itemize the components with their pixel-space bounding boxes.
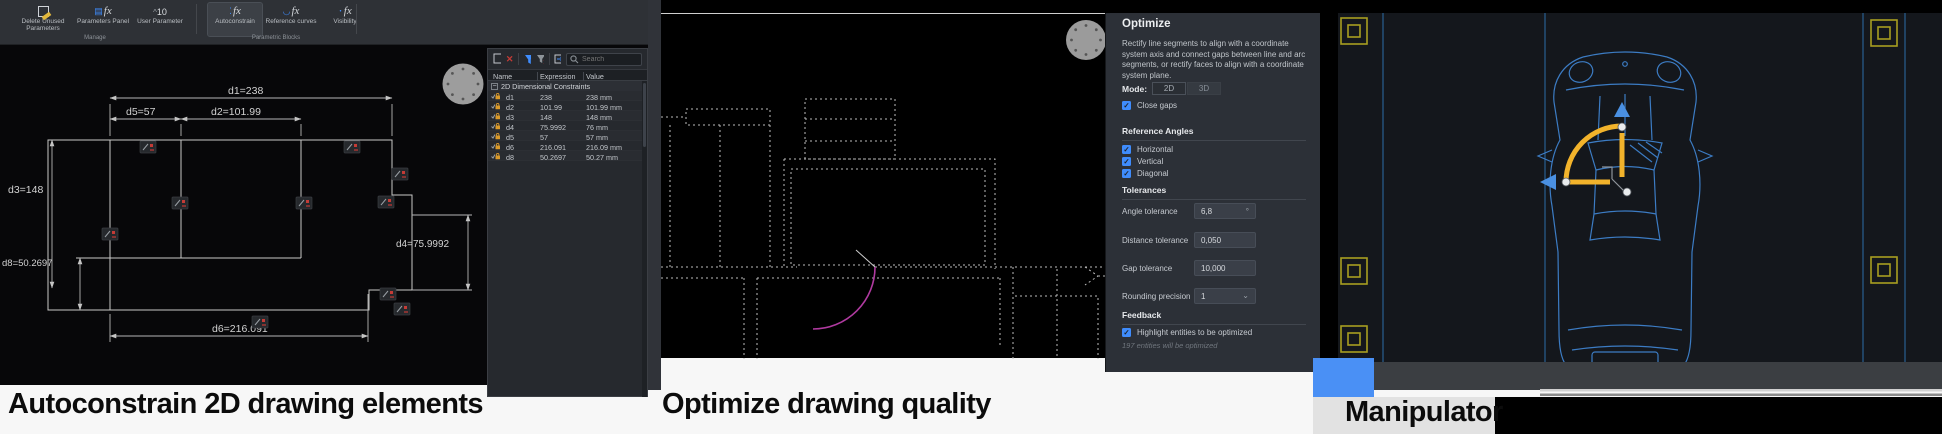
window-bottom-band — [1338, 362, 1942, 390]
distance-tolerance-input[interactable]: 0,050 — [1194, 232, 1256, 248]
table-row[interactable]: d55757 mm — [488, 131, 647, 141]
section-feedback: Feedback — [1122, 310, 1161, 320]
clear-filter-icon[interactable] — [536, 54, 544, 65]
angle-tolerance-label: Angle tolerance — [1122, 207, 1178, 216]
angle-tolerance-input[interactable]: 6,8° — [1194, 203, 1256, 219]
constraint-badges[interactable] — [102, 141, 410, 328]
section-reference-angles: Reference Angles — [1122, 126, 1194, 136]
blue-accent-square — [1313, 358, 1374, 397]
dim-d2: d2=101.99 — [211, 106, 261, 118]
ribbon-group-parametric-blocks: Parametric Blocks — [196, 35, 356, 41]
toolbar-separator — [518, 53, 519, 65]
navigation-ball-icon[interactable] — [443, 64, 484, 105]
dim-d1: d1=238 — [228, 85, 263, 97]
search-icon — [570, 55, 579, 64]
group-row-2d-dimensional-constraints[interactable]: − 2D Dimensional Constraints — [488, 81, 647, 91]
caption-manipulator: Manipulator — [1345, 396, 1503, 429]
horizontal-label: Horizontal — [1137, 145, 1173, 154]
panel-description: Rectify line segments to align with a co… — [1122, 39, 1306, 81]
dim-d8: d8=50.2697 — [2, 258, 52, 269]
constraint-lock-icon — [491, 152, 501, 160]
search-input[interactable] — [582, 56, 638, 63]
caption-autoconstrain: Autoconstrain 2D drawing elements — [8, 388, 483, 421]
close-gaps-checkbox[interactable]: ✓ — [1122, 101, 1131, 110]
band-edge-dark — [1540, 394, 1942, 397]
optimize-panel: Optimize Rectify line segments to align … — [1105, 13, 1320, 372]
column-value[interactable]: Value — [586, 72, 604, 81]
navigation-ball-icon[interactable] — [1066, 20, 1105, 60]
table-row[interactable]: d850.269750.27 mm — [488, 151, 647, 161]
close-gaps-label: Close gaps — [1137, 101, 1177, 110]
constraint-lock-icon — [491, 122, 501, 130]
rounding-precision-label: Rounding precision — [1122, 292, 1191, 301]
feedback-note: 197 entities will be optimized — [1122, 341, 1217, 350]
panel-scrollbar[interactable] — [642, 81, 647, 397]
visibility-button[interactable]: ･fx Visibility — [318, 3, 372, 36]
ribbon-separator — [196, 4, 197, 34]
table-fx-icon: ▤fx — [94, 3, 111, 17]
constraint-lock-icon — [491, 102, 501, 110]
delete-unused-parameters-button[interactable]: Delete Unused Parameters — [16, 3, 70, 36]
dim-d4: d4=75.9992 — [396, 239, 450, 250]
section-tolerances: Tolerances — [1122, 185, 1166, 195]
floorplan-canvas[interactable] — [661, 14, 1105, 359]
drawing-background — [1338, 13, 1942, 362]
search-box[interactable] — [566, 53, 642, 66]
vertical-checkbox[interactable]: ✓ — [1122, 157, 1131, 166]
highlight-entities-label: Highlight entities to be optimized — [1137, 328, 1252, 337]
collapse-icon[interactable]: − — [491, 83, 498, 90]
autoconstrain-button[interactable]: ⁚fx Autoconstrain — [208, 3, 262, 36]
bottom-right-black — [1495, 397, 1942, 434]
door-swing — [813, 250, 875, 329]
parameters-toolbar: ✕ — [488, 49, 647, 70]
distance-tolerance-label: Distance tolerance — [1122, 236, 1188, 245]
rounding-precision-dropdown[interactable]: 1⌄ — [1194, 288, 1256, 304]
constraint-lock-icon — [491, 132, 501, 140]
ribbon-group-manage: Manage — [30, 35, 160, 41]
diagonal-label: Diagonal — [1137, 169, 1169, 178]
column-expression[interactable]: Expression — [540, 72, 576, 81]
section-divider — [1122, 199, 1306, 200]
feature-showcase: Delete Unused Parameters ▤fx Parameters … — [0, 0, 1942, 434]
constraint-lock-icon — [491, 92, 501, 100]
band-edge-light — [1540, 389, 1942, 392]
manipulator-screenshot[interactable] — [1338, 0, 1942, 397]
panel-title: Optimize — [1122, 18, 1171, 30]
mode-2d-button[interactable]: 2D — [1152, 82, 1186, 95]
caption-optimize: Optimize drawing quality — [662, 388, 991, 421]
gap-tolerance-input[interactable]: 10,000 — [1194, 260, 1256, 276]
ribbon-separator — [356, 4, 357, 34]
mode-label: Mode: — [1122, 84, 1147, 94]
constraint-lock-icon — [491, 142, 501, 150]
gap-tolerance-label: Gap tolerance — [1122, 264, 1172, 273]
dim-d5: d5=57 — [126, 106, 156, 118]
new-parameter-icon[interactable] — [493, 53, 501, 65]
chevron-down-icon: ⌄ — [1242, 294, 1249, 298]
diagonal-checkbox[interactable]: ✓ — [1122, 169, 1131, 178]
optimize-screenshot — [661, 13, 1105, 358]
parameters-panel: ✕ Name Expression Value − 2D Dimensional… — [487, 48, 648, 397]
card-divider-2 — [1320, 0, 1338, 390]
section-divider — [1122, 324, 1306, 325]
table-row[interactable]: d1238238 mm — [488, 91, 647, 101]
user-parameter-button[interactable]: ^10 User Parameter — [133, 3, 187, 36]
filter-icon[interactable] — [524, 54, 531, 65]
fx-visibility-icon: ･fx — [338, 3, 351, 17]
table-row[interactable]: d6216.091216.09 mm — [488, 141, 647, 151]
column-name[interactable]: Name — [493, 72, 512, 81]
parameters-panel-button[interactable]: ▤fx Parameters Panel — [76, 3, 130, 36]
table-row[interactable]: d3148148 mm — [488, 111, 647, 121]
number-10-icon: ^10 — [153, 3, 167, 17]
horizontal-checkbox[interactable]: ✓ — [1122, 145, 1131, 154]
dim-d3: d3=148 — [8, 184, 43, 196]
fx-autoconstrain-icon: ⁚fx — [229, 3, 241, 17]
table-header: Name Expression Value — [488, 70, 647, 81]
delete-parameter-icon[interactable]: ✕ — [506, 54, 514, 65]
reference-curves-button[interactable]: ◡fx Reference curves — [264, 3, 318, 36]
broom-icon — [38, 3, 49, 17]
floorplan-walls — [661, 99, 1105, 359]
part-outline — [48, 140, 412, 310]
toolbar-separator — [549, 53, 550, 65]
constraint-lock-icon — [491, 112, 501, 120]
table-row[interactable]: d2101.99101.99 mm — [488, 101, 647, 111]
fx-curves-icon: ◡fx — [283, 3, 300, 17]
mode-3d-button[interactable]: 3D — [1187, 82, 1221, 95]
section-divider — [1122, 140, 1306, 141]
ribbon-toolbar: Delete Unused Parameters ▤fx Parameters … — [0, 0, 648, 45]
table-row[interactable]: d475.999276 mm — [488, 121, 647, 131]
highlight-entities-checkbox[interactable]: ✓ — [1122, 328, 1131, 337]
degree-suffix: ° — [1246, 207, 1249, 216]
vertical-label: Vertical — [1137, 157, 1163, 166]
export-icon[interactable] — [554, 53, 561, 65]
